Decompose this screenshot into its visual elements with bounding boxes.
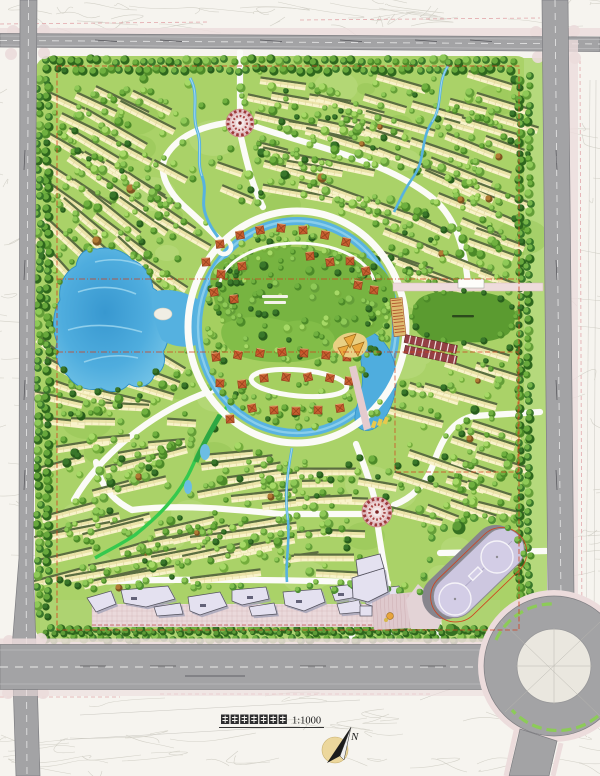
svg-text:1:1000: 1:1000 xyxy=(292,716,321,727)
svg-text:N: N xyxy=(350,731,359,743)
